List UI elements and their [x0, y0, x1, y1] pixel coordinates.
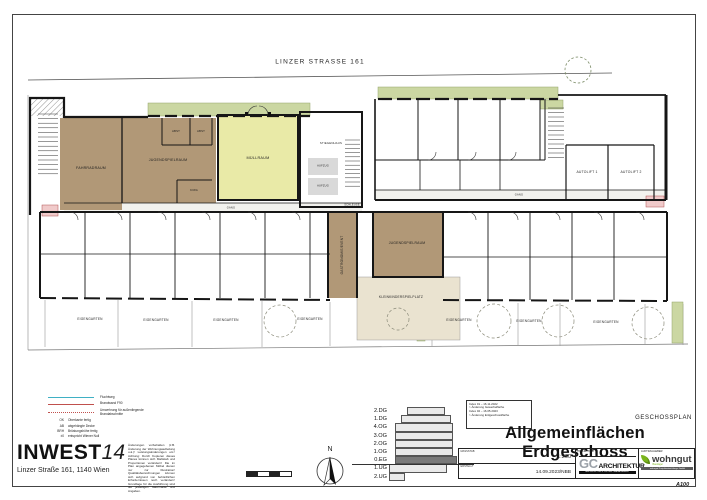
revision-line: > Änderung Erdgeschossfläche [469, 414, 529, 418]
north-arrow-icon [313, 454, 347, 488]
architect-cell: PROJEKTANT GC ARCHITEKTUR ARCHITEKTUR & … [576, 449, 639, 478]
room-label-jugendspielraum-2: JUGENDSPIELRAUM [389, 241, 426, 245]
floor-label: 4.OG [363, 423, 389, 431]
north-label: N [322, 446, 338, 453]
date-value: 14.09.2023/NBB [536, 470, 571, 475]
room-label-fahrradraum: FAHRRADRAUM [76, 166, 106, 170]
brand-name: INWEST [17, 441, 102, 464]
room-label-schleuse: SCHLEUSE [344, 204, 360, 207]
legend-red-dotted-line [48, 412, 94, 413]
room-label-spielplatz: KLEINKINDERSPIELPLATZ [379, 295, 423, 299]
floor-label: 2.DG [363, 407, 389, 415]
legend-abbr-item: OK Oberkante fertig [48, 419, 178, 423]
garden-label: EIGENGARTEN [446, 318, 471, 322]
floor-level-diagram: 2.DG 1.DG 4.OG 3.OG 2.OG 1.OG 0.EG 1.UG … [363, 407, 457, 481]
floor-bar [389, 473, 405, 481]
leaf-icon [641, 455, 650, 464]
date-cell: ERSTELLT 14.09.2023/NBB [459, 464, 575, 478]
architect-cell-label: PROJEKTANT [578, 450, 595, 453]
room-label-jugendspielraum-1: JUGENDSPIELRAUM [149, 158, 188, 162]
floor-label: 1.OG [363, 448, 389, 456]
floor-bar [401, 415, 451, 423]
gc-architektur-logo: GC ARCHITEKTUR ARCHITEKTUR & PROJEKTMANA… [579, 456, 636, 474]
legend-line-item: Fluchtweg [48, 396, 178, 400]
plan-sheet: LINZER STRASSE 161 FAHRRADRAUM JUGENDSPI… [0, 0, 707, 500]
room-label-abst-2: ABST [197, 129, 205, 133]
room-label-autolift-1: AUTOLIFT 1 [576, 170, 597, 174]
floor-label: 3.OG [363, 432, 389, 440]
room-label-kiwa: KIWA [190, 188, 198, 192]
legend-line-item: Umwehrung für außenliegende Brandabschni… [48, 409, 178, 417]
brand-suffix: 14 [102, 441, 125, 464]
project-brand: INWEST14 Linzer Straße 161, 1140 Wien [17, 441, 125, 474]
room-label-autolift-2: AUTOLIFT 2 [620, 170, 641, 174]
floor-bar [395, 448, 453, 456]
sheet-code: A100 [676, 482, 689, 488]
legend: Fluchtweg Brandwand F90 Umwehrung für au… [48, 396, 178, 441]
room-label-aufzug-1: AUFZUG [317, 165, 329, 168]
legend-red-line [48, 404, 94, 405]
scale-bar [246, 471, 292, 477]
title-block-table: MASSSTAB 1:200 ERSTELLT 14.09.2023/NBB P… [458, 448, 695, 479]
client-cell: AUFTRAGGEBER wohngut Bauträger wohngut P… [639, 449, 694, 478]
floor-label: 1.UG [363, 464, 389, 472]
room-label-gang-right: GANG [515, 194, 523, 197]
ground-line [352, 464, 474, 465]
date-cell-label: ERSTELLT [461, 465, 474, 468]
room-label-muellraum: MÜLLRAUM [247, 156, 270, 160]
document-type-label: GESCHOSSPLAN [560, 415, 692, 421]
room-label-stiegenhaus: STIEGENHAUS [320, 141, 342, 145]
floor-bar [395, 423, 453, 431]
garden-label: EIGENGARTEN [593, 320, 618, 324]
disclaimer-text: Änderungen vorbehalten (z.B. Änderung de… [128, 444, 175, 493]
garden-label: EIGENGARTEN [516, 319, 541, 323]
floor-bar [407, 407, 445, 415]
floor-label: 2.UG [363, 473, 389, 481]
room-label-gastro-event: GASTRONOMIE/EVENT [340, 236, 344, 275]
floor-bar [395, 440, 453, 448]
room-label-abst-1: ABST [172, 129, 180, 133]
scale-value: 1:200 [557, 454, 571, 460]
garden-label: EIGENGARTEN [77, 317, 102, 321]
scale-cell-label: MASSSTAB [461, 450, 475, 453]
garden-label: EIGENGARTEN [297, 317, 322, 321]
scale-cell: MASSSTAB 1:200 [459, 449, 575, 464]
legend-cyan-line [48, 397, 94, 398]
street-label: LINZER STRASSE 161 [275, 59, 365, 66]
brand-address: Linzer Straße 161, 1140 Wien [17, 467, 125, 474]
floor-bar [389, 464, 447, 472]
floor-bar [395, 432, 453, 440]
floor-label: 2.OG [363, 440, 389, 448]
garden-label: EIGENGARTEN [143, 318, 168, 322]
room-label-aufzug-2: AUFZUG [317, 185, 329, 188]
garden-label: EIGENGARTEN [213, 318, 238, 322]
legend-abbr-item: AB abgehängte Decke [48, 425, 178, 429]
client-cell-label: AUFTRAGGEBER [641, 450, 662, 453]
room-label-gang-left: GANG [227, 207, 235, 210]
legend-line-item: Brandwand F90 [48, 402, 178, 406]
wohngut-logo: wohngut Bauträger wohngut Projektentwick… [641, 455, 693, 470]
legend-abbr-item: BRH Brüstungshöhe fertig [48, 430, 178, 434]
floor-label: 1.DG [363, 415, 389, 423]
legend-abbr-item: ±0 entspricht Wiener Null [48, 435, 178, 439]
